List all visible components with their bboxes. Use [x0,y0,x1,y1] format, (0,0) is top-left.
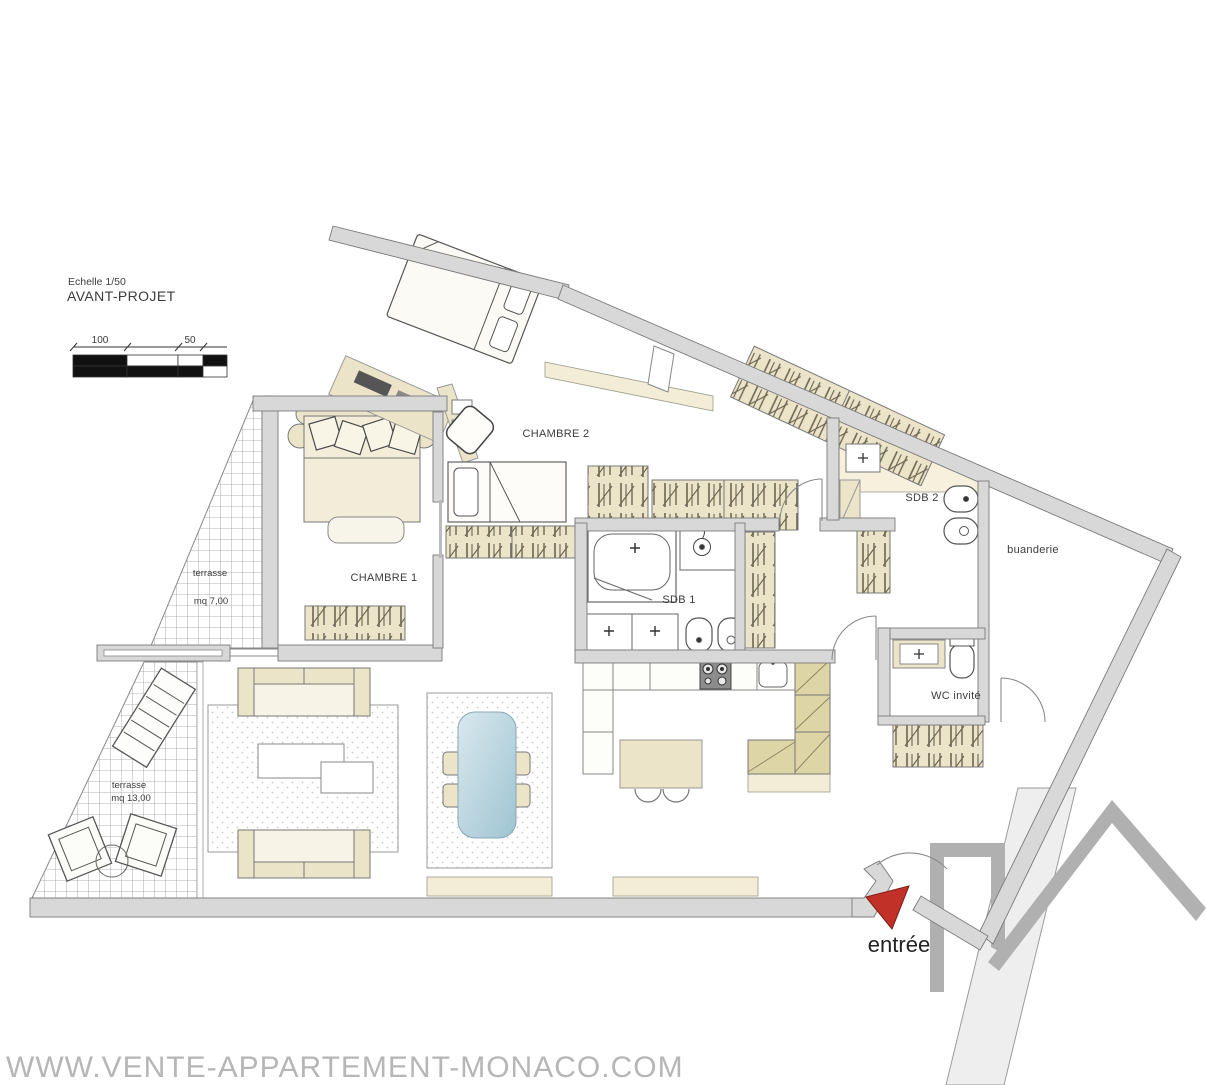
bed2-single [448,462,566,522]
sofa-bottom [238,830,370,878]
label-terrasse-haut: terrasse [193,568,227,579]
label-terrasse-bas-area: mq 13,00 [111,793,151,804]
label-chambre2: CHAMBRE 2 [523,428,590,440]
sdb2-bidet [944,518,978,544]
bathtub [588,528,676,602]
sdb1-fixtures [586,524,744,652]
terrace-glass-door [230,649,278,656]
wall-window-notch [648,346,674,392]
living-room [208,668,398,878]
kitchen-sink [759,662,787,687]
floorplan-drawing: Echelle 1/50 AVANT-PROJET 100 50 CHAMBRE… [0,0,1206,1085]
bed1-bench [328,517,404,543]
sofa-top [238,668,370,716]
wc-closet [893,725,983,767]
terrace-window-line [197,662,203,898]
label-entree: entrée [868,932,930,957]
dining-area [427,693,552,868]
label-terrasse-bas: terrasse [112,780,146,791]
label-wc-invite: WC invité [931,690,981,702]
plan-header: Echelle 1/50 AVANT-PROJET [67,276,176,304]
label-terrasse-haut-area: mq 7,00 [194,596,228,607]
stove [700,660,731,689]
door-hall [832,616,876,660]
toilet [686,618,712,652]
scale-bar: 100 50 [70,335,227,377]
scale-50-label: 50 [184,335,196,346]
label-buanderie: buanderie [1007,544,1059,556]
project-title: AVANT-PROJET [67,288,176,304]
door-buanderie [1001,678,1045,722]
sdb2-toilet [944,486,978,512]
dining-table [458,712,516,838]
bar-stools [635,789,689,802]
wc-toilet [950,644,974,678]
closet-column-1 [745,532,775,648]
scale-note: Echelle 1/50 [68,276,126,288]
living-window [104,650,222,656]
coffee-table-2 [321,762,373,793]
chambre1-wardrobe [305,606,405,640]
label-sdb2: SDB 2 [905,492,938,504]
wc-fixtures [893,638,974,678]
kitchen-island [620,740,702,788]
terrace-upper [150,398,262,648]
label-chambre1: CHAMBRE 1 [351,572,418,584]
closet-column-2 [857,525,890,593]
watermark-text: WWW.VENTE-APPARTEMENT-MONACO.COM [6,1051,684,1084]
label-sdb1: SDB 1 [662,594,695,606]
scale-100-label: 100 [92,335,109,346]
floorplan-page: Echelle 1/50 AVANT-PROJET 100 50 CHAMBRE… [0,0,1206,1085]
